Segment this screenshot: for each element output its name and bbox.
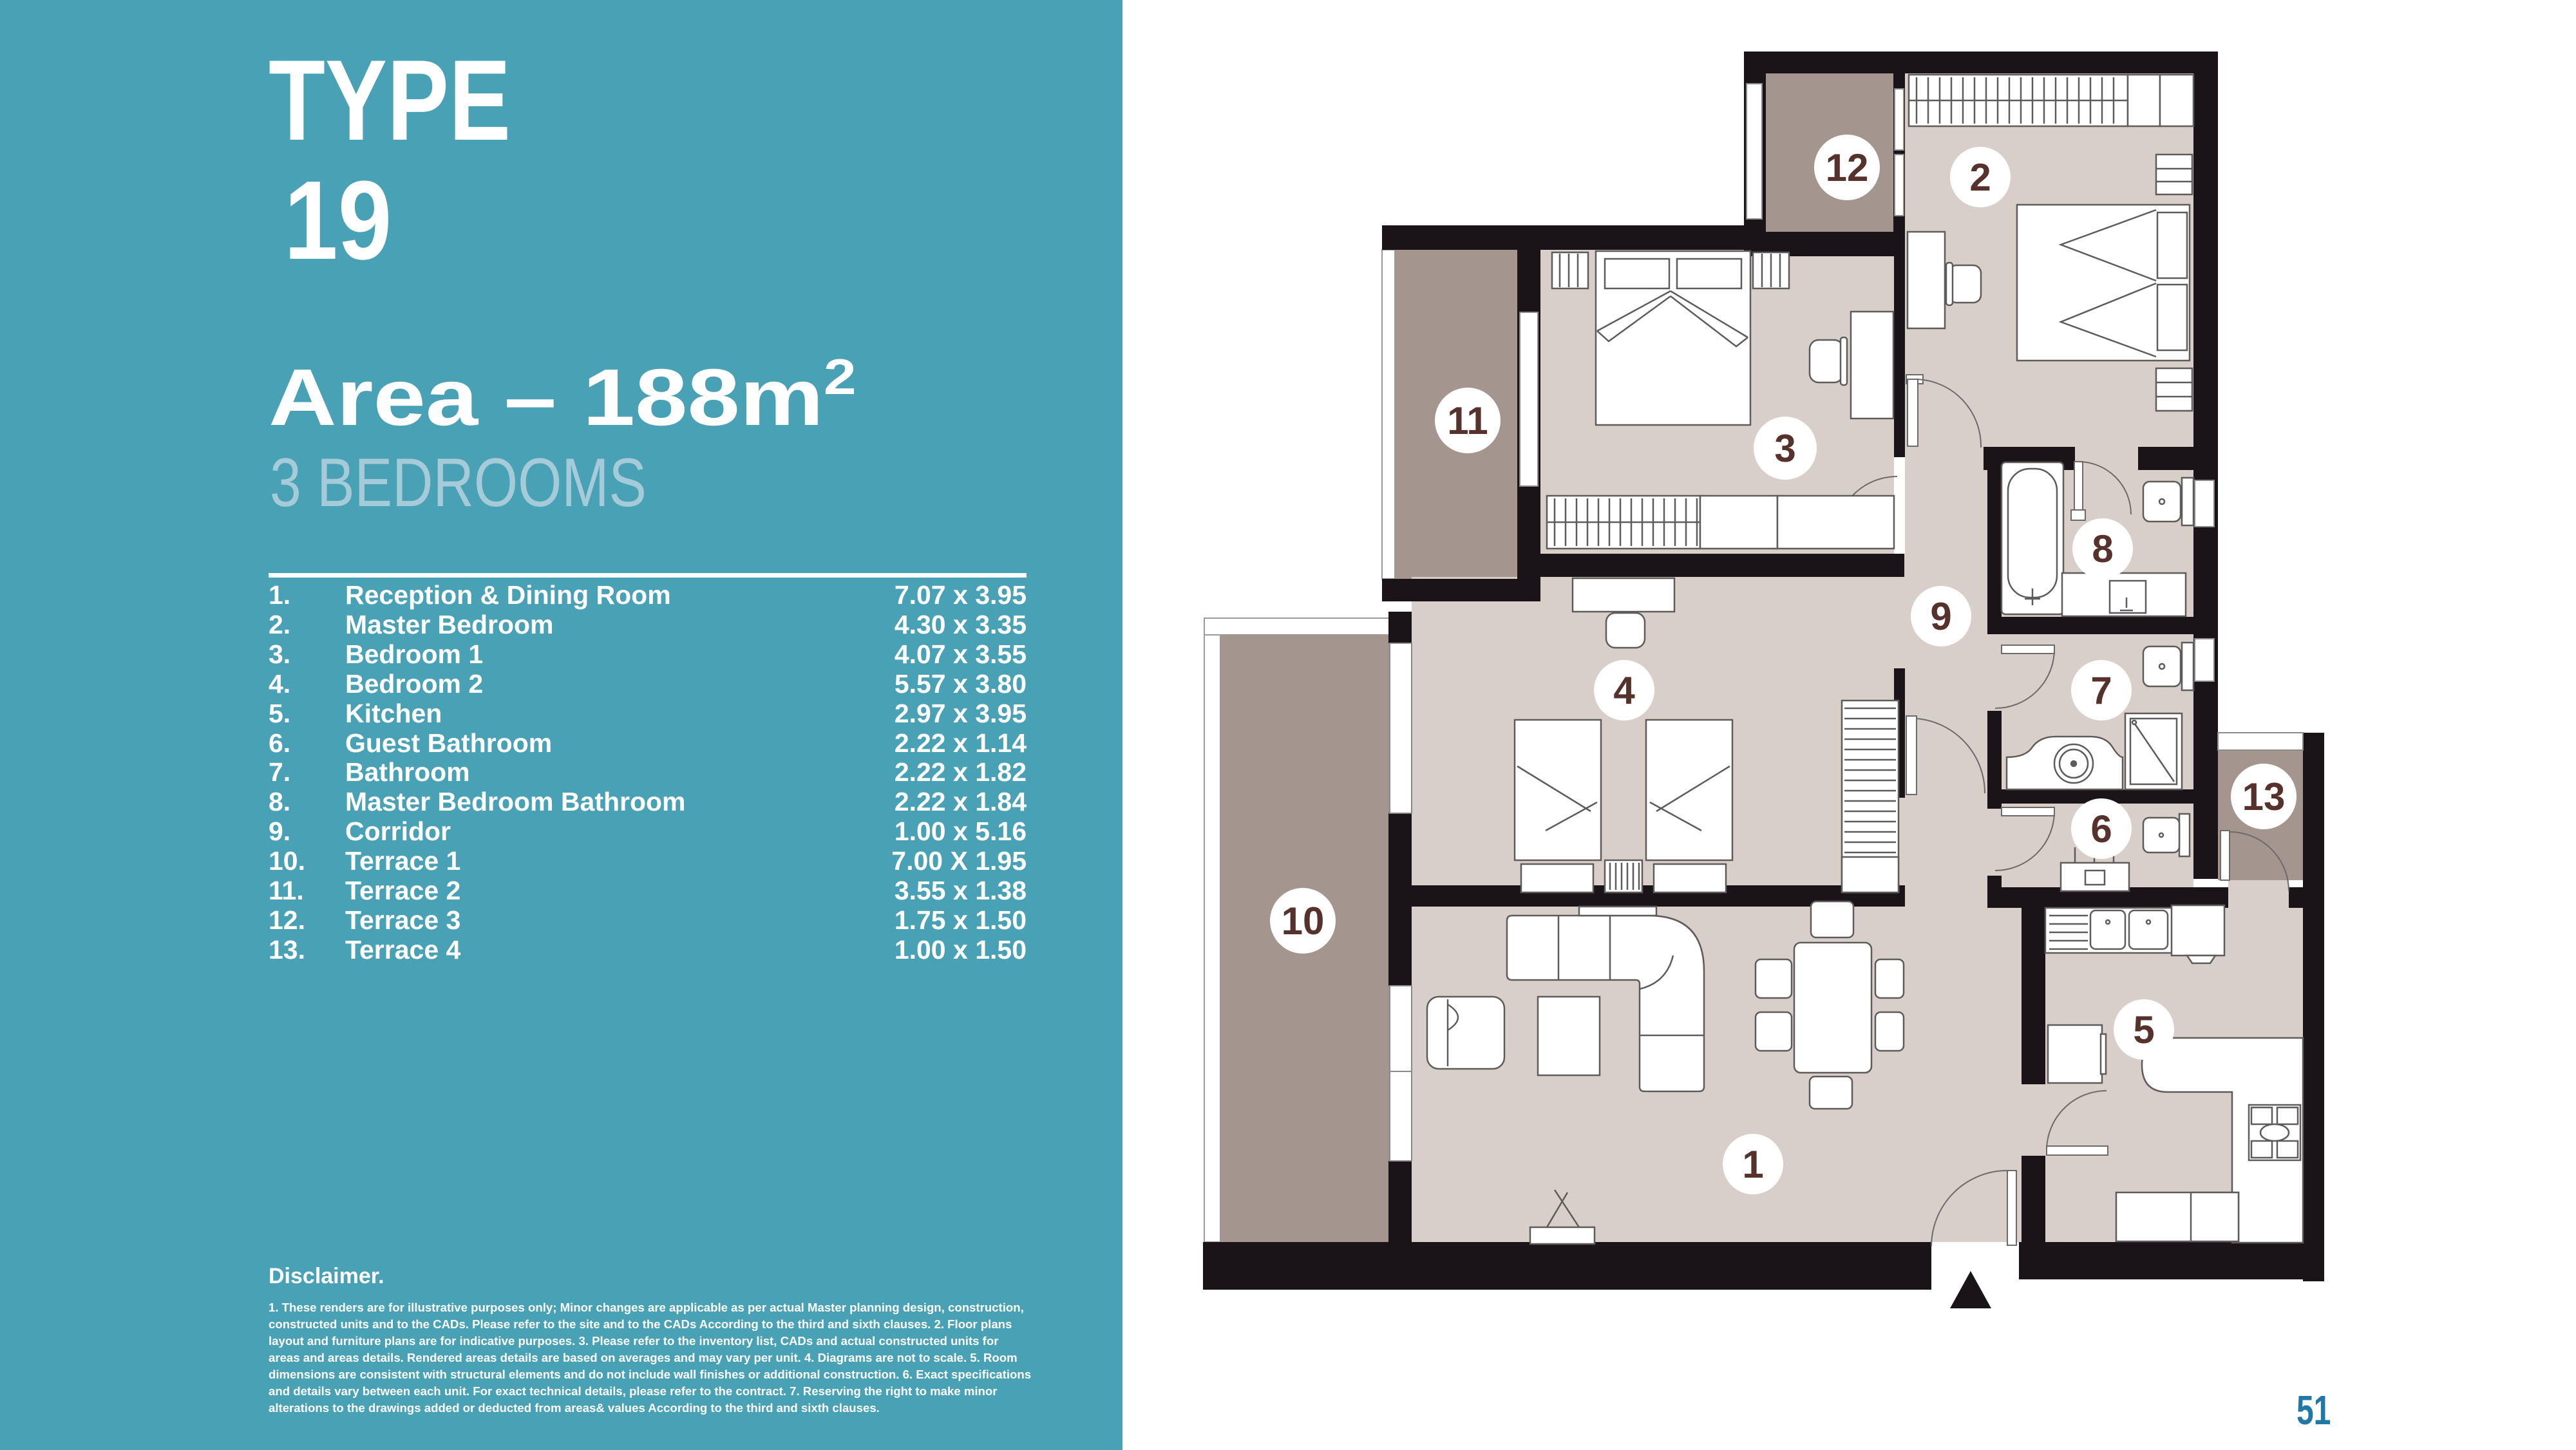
svg-text:1.75 x 1.50: 1.75 x 1.50 <box>895 905 1027 935</box>
svg-text:Disclaimer.: Disclaimer. <box>269 1264 384 1288</box>
svg-text:5.57 x 3.80: 5.57 x 3.80 <box>895 669 1027 699</box>
svg-text:Reception & Dining Room: Reception & Dining Room <box>345 580 671 610</box>
svg-text:Terrace 2: Terrace 2 <box>345 876 460 905</box>
svg-text:Master Bedroom Bathroom: Master Bedroom Bathroom <box>345 787 686 816</box>
svg-text:dimensions are consistent with: dimensions are consistent with structura… <box>269 1368 1031 1381</box>
svg-text:Bedroom 2: Bedroom 2 <box>345 669 483 699</box>
svg-text:4.: 4. <box>269 669 290 699</box>
svg-text:11.: 11. <box>269 876 304 905</box>
svg-text:9: 9 <box>1930 595 1951 638</box>
svg-text:Kitchen: Kitchen <box>345 699 442 728</box>
svg-text:Terrace 3: Terrace 3 <box>345 905 460 935</box>
svg-text:constructed units and to the C: constructed units and to the CADs. Pleas… <box>269 1317 1012 1331</box>
svg-text:7: 7 <box>2090 669 2112 712</box>
svg-text:layout and furniture plans are: layout and furniture plans are for indic… <box>269 1334 998 1348</box>
svg-text:1.00 x 5.16: 1.00 x 5.16 <box>895 816 1027 846</box>
svg-text:Terrace 4: Terrace 4 <box>345 935 461 965</box>
svg-text:3.55 x 1.38: 3.55 x 1.38 <box>895 876 1027 905</box>
svg-text:11: 11 <box>1447 399 1488 442</box>
svg-text:12: 12 <box>1826 146 1869 189</box>
svg-text:4: 4 <box>1613 669 1635 712</box>
svg-text:2: 2 <box>1969 156 1991 199</box>
svg-text:2.22 x 1.14: 2.22 x 1.14 <box>895 728 1027 758</box>
svg-text:2.22 x 1.84: 2.22 x 1.84 <box>895 787 1027 816</box>
svg-text:4.30 x 3.35: 4.30 x 3.35 <box>895 610 1027 639</box>
svg-text:3 BEDROOMS: 3 BEDROOMS <box>270 444 647 521</box>
svg-text:2.97 x 3.95: 2.97 x 3.95 <box>895 699 1027 728</box>
svg-text:9.: 9. <box>269 816 290 846</box>
svg-text:3.: 3. <box>269 639 290 669</box>
svg-text:12.: 12. <box>269 905 305 935</box>
svg-text:2.: 2. <box>269 610 290 639</box>
svg-text:7.00 X 1.95: 7.00 X 1.95 <box>891 846 1027 876</box>
svg-text:1. These renders are for illus: 1. These renders are for illustrative pu… <box>269 1301 1024 1314</box>
svg-text:areas and areas details. Rende: areas and areas details. Rendered areas … <box>269 1351 1018 1364</box>
svg-text:Corridor: Corridor <box>345 816 451 846</box>
svg-text:and details vary between each: and details vary between each unit. For … <box>269 1384 997 1398</box>
svg-text:1.: 1. <box>269 580 290 610</box>
svg-text:Bedroom 1: Bedroom 1 <box>345 639 483 669</box>
svg-text:2.22 x 1.82: 2.22 x 1.82 <box>895 757 1027 787</box>
svg-text:8.: 8. <box>269 787 290 816</box>
svg-text:13.: 13. <box>269 935 305 965</box>
svg-text:13: 13 <box>2242 775 2286 818</box>
svg-text:10: 10 <box>1282 899 1325 943</box>
svg-text:5: 5 <box>2133 1008 2154 1051</box>
svg-text:10.: 10. <box>269 846 305 876</box>
svg-text:7.07 x 3.95: 7.07 x 3.95 <box>895 580 1027 610</box>
svg-text:Bathroom: Bathroom <box>345 757 470 787</box>
svg-text:Terrace 1: Terrace 1 <box>345 846 460 876</box>
svg-text:5.: 5. <box>269 699 290 728</box>
svg-text:alterations to the drawings ad: alterations to the drawings added or ded… <box>269 1401 880 1415</box>
svg-text:19: 19 <box>284 158 392 283</box>
svg-text:Area – 188m2: Area – 188m2 <box>269 348 857 442</box>
svg-text:Guest Bathroom: Guest Bathroom <box>345 728 552 758</box>
svg-text:8: 8 <box>2092 527 2113 570</box>
svg-text:6.: 6. <box>269 728 290 758</box>
svg-text:1.00 x 1.50: 1.00 x 1.50 <box>895 935 1027 965</box>
svg-text:1: 1 <box>1742 1143 1763 1186</box>
svg-text:51: 51 <box>2297 1387 2331 1433</box>
svg-text:TYPE: TYPE <box>269 36 511 164</box>
svg-text:7.: 7. <box>269 757 290 787</box>
svg-text:Master Bedroom: Master Bedroom <box>345 610 554 639</box>
svg-text:6: 6 <box>2090 807 2112 851</box>
svg-text:3: 3 <box>1774 427 1795 470</box>
svg-text:4.07 x 3.55: 4.07 x 3.55 <box>895 639 1027 669</box>
